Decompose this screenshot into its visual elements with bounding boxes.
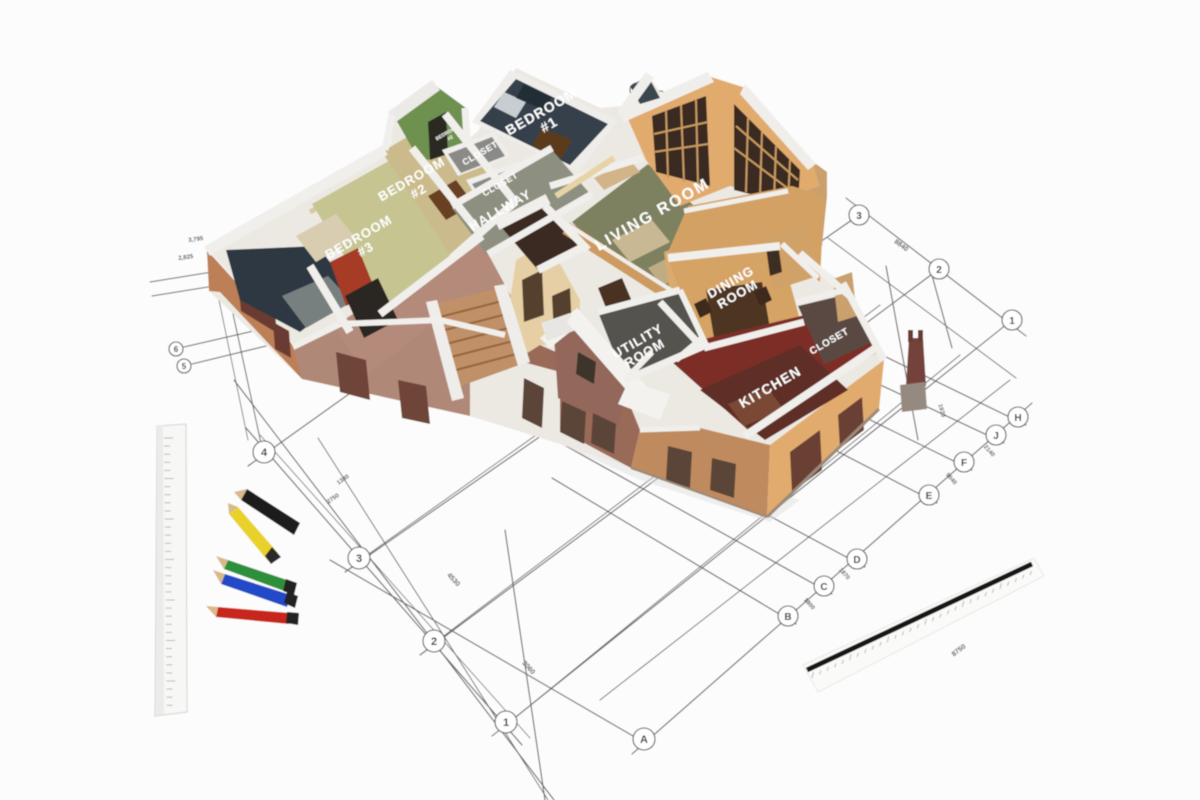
svg-text:5: 5 xyxy=(182,362,187,371)
svg-text:3: 3 xyxy=(356,553,362,565)
svg-text:6: 6 xyxy=(174,345,179,354)
svg-text:A: A xyxy=(640,734,648,746)
svg-text:D: D xyxy=(853,555,860,566)
svg-text:C: C xyxy=(820,582,827,593)
svg-text:1: 1 xyxy=(503,717,509,729)
svg-text:J: J xyxy=(993,431,999,442)
svg-text:2: 2 xyxy=(431,636,437,648)
svg-text:1: 1 xyxy=(1009,316,1015,327)
svg-text:3: 3 xyxy=(856,211,862,222)
svg-text:2: 2 xyxy=(936,265,942,276)
svg-text:B: B xyxy=(784,612,791,623)
svg-text:H: H xyxy=(1014,413,1021,424)
svg-text:4: 4 xyxy=(261,447,268,459)
svg-text:F: F xyxy=(961,458,967,469)
svg-text:E: E xyxy=(926,491,933,502)
